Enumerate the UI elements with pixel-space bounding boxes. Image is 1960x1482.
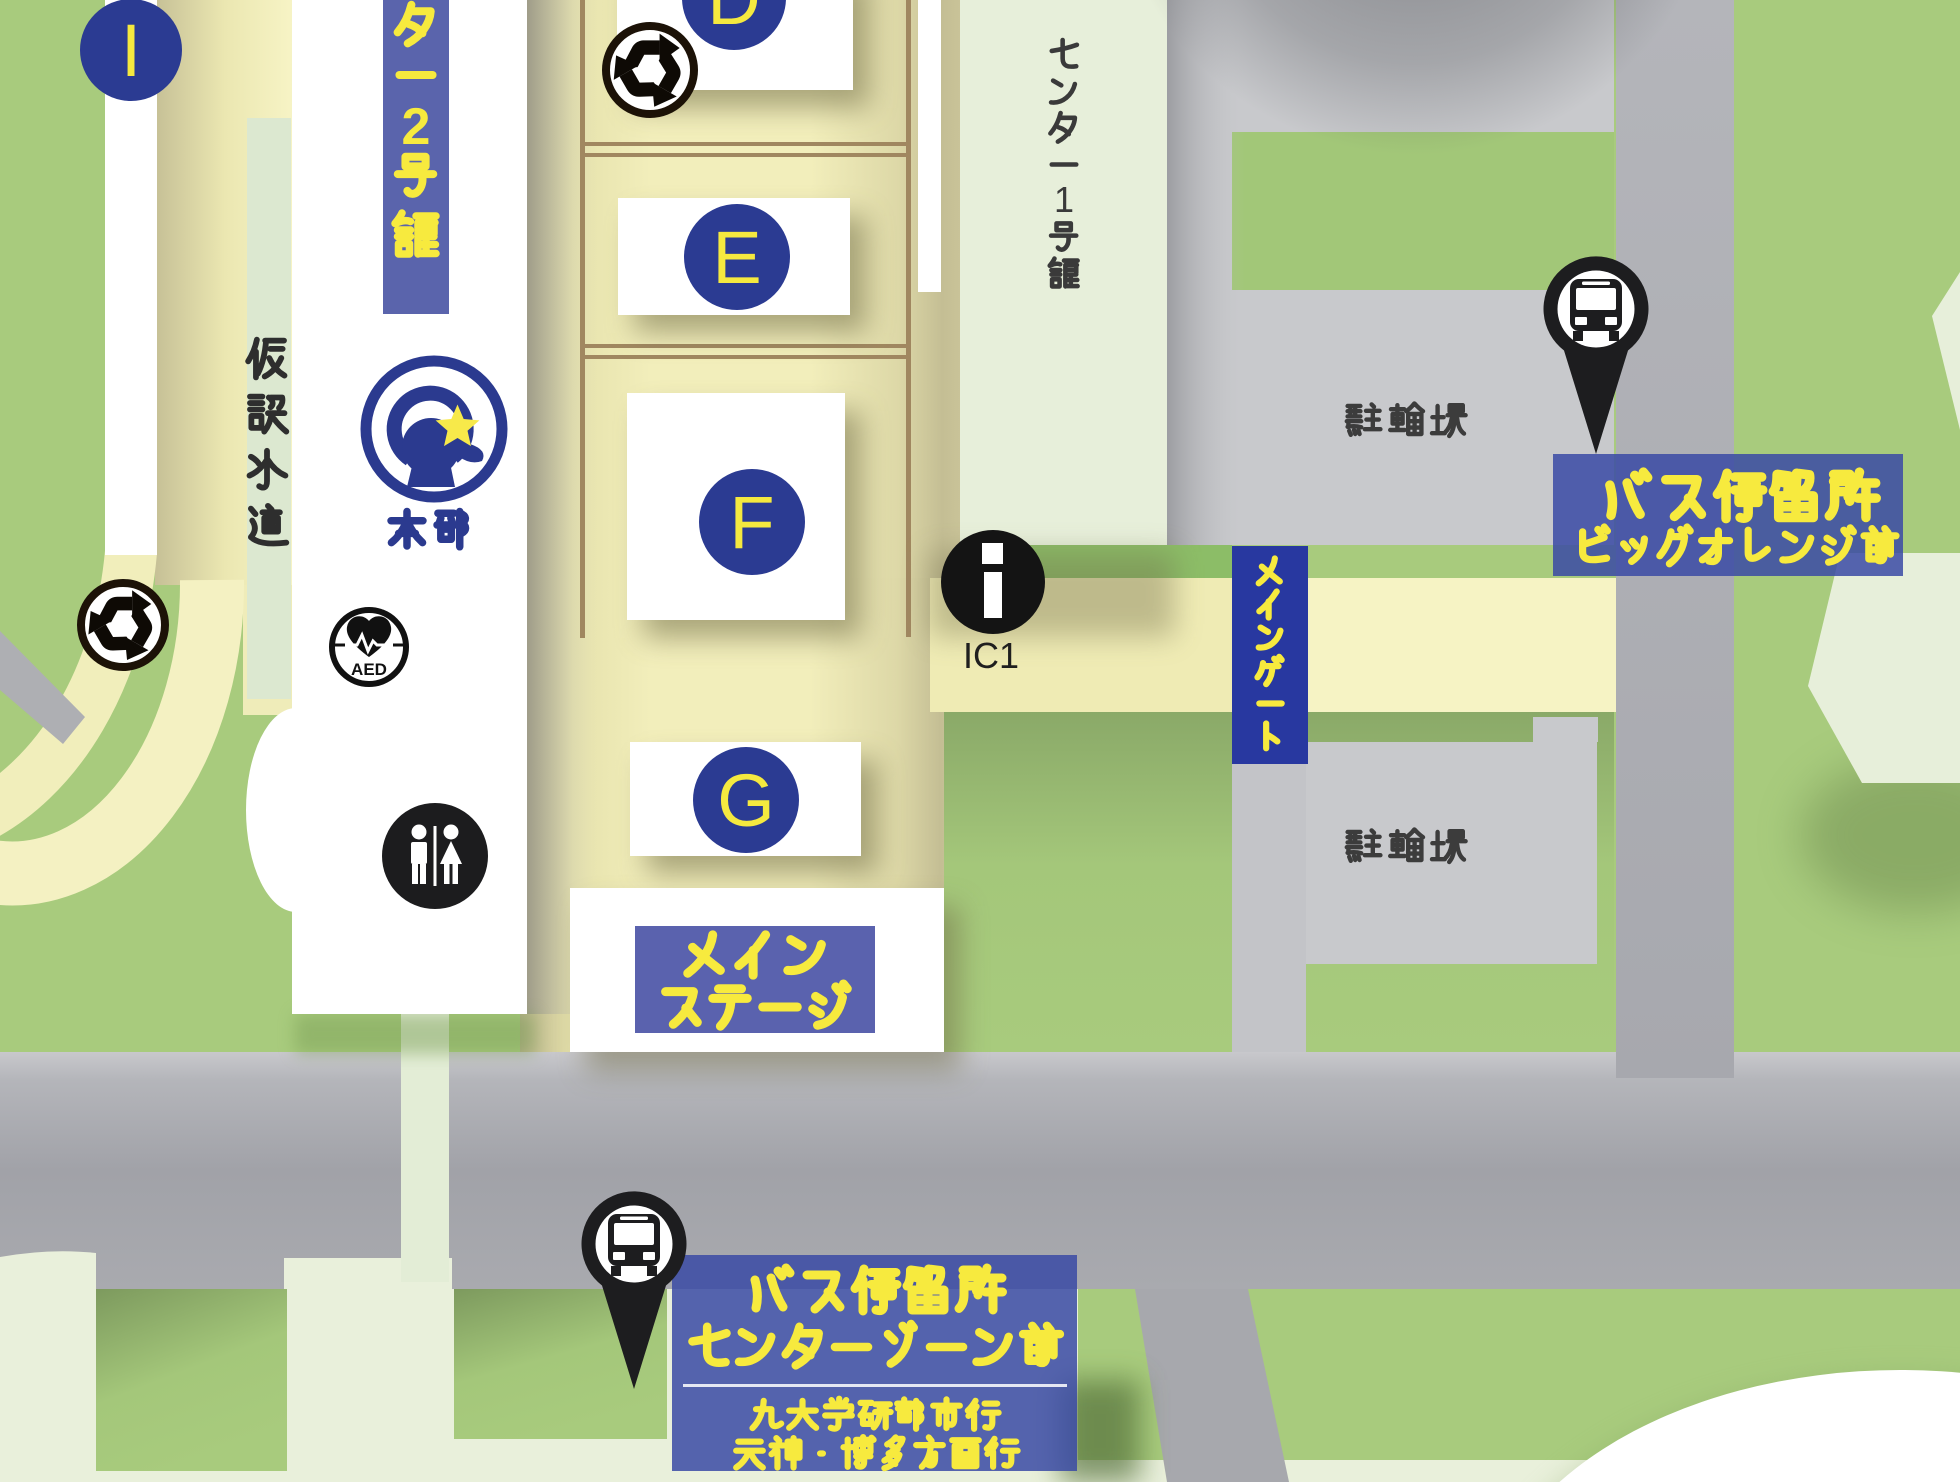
- svg-text:D: D: [707, 0, 760, 40]
- svg-text:E: E: [712, 216, 761, 299]
- svg-text:1: 1: [1054, 179, 1074, 220]
- svg-text:IC1: IC1: [963, 635, 1019, 676]
- svg-text:2: 2: [402, 98, 431, 156]
- svg-text:AED: AED: [351, 660, 387, 679]
- svg-text:F: F: [729, 481, 774, 564]
- svg-text:I: I: [121, 9, 142, 92]
- svg-text:G: G: [717, 759, 775, 842]
